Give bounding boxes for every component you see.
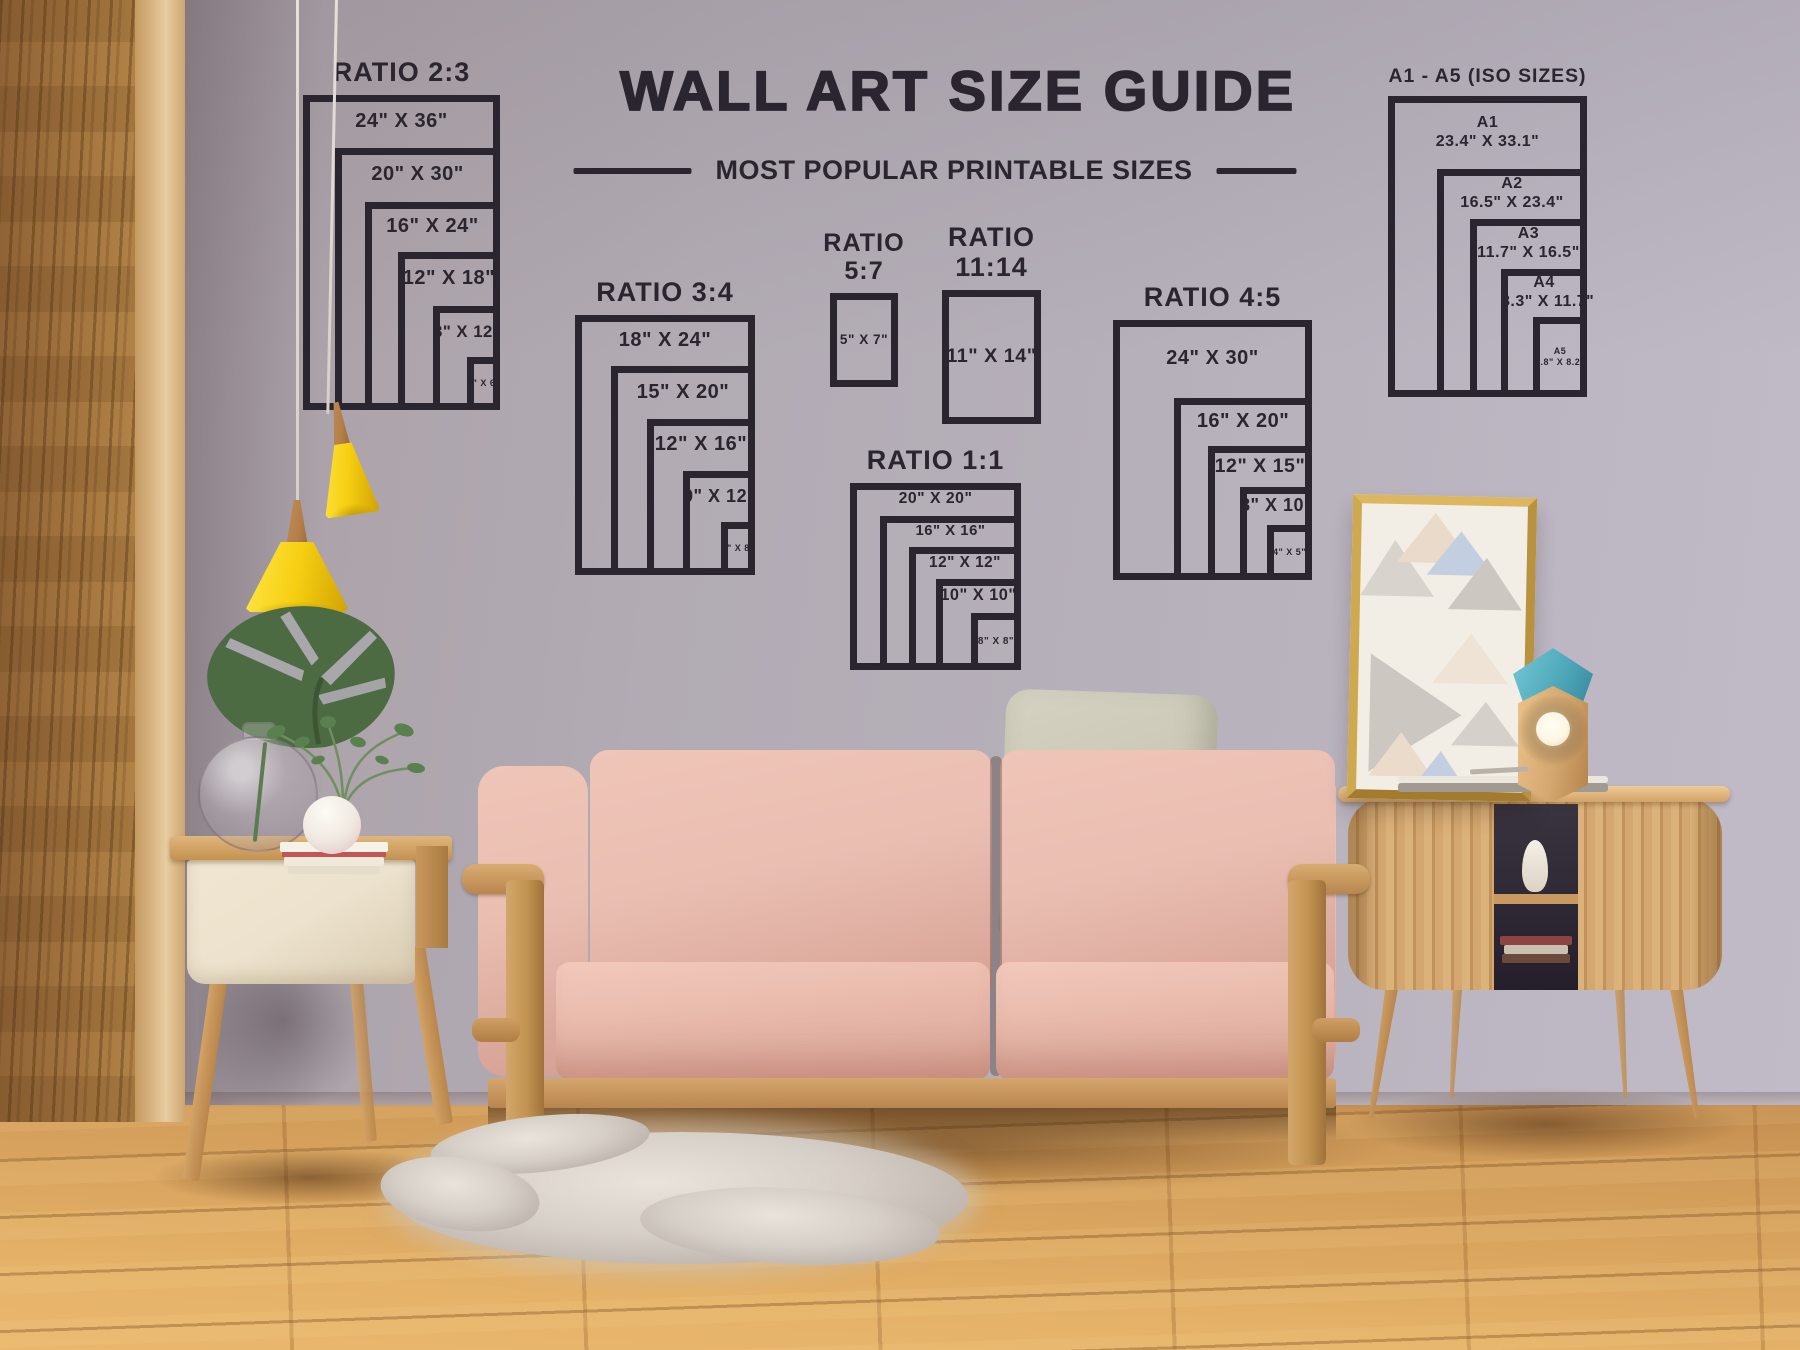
side-table-side-panel bbox=[416, 846, 448, 948]
chart-title-iso-a1-a5: A1 - A5 (ISO SIZES) bbox=[1389, 66, 1587, 88]
lamp-wood-neck bbox=[281, 500, 313, 546]
lamp-yellow-shade bbox=[316, 440, 379, 519]
lamp-cord-left bbox=[296, 0, 299, 512]
size-label: A311.7" X 16.5" bbox=[1470, 225, 1587, 263]
size-label: 8" X 10" bbox=[1240, 495, 1312, 516]
side-table-drawer bbox=[187, 860, 415, 984]
size-label: 4" X 6" bbox=[467, 378, 500, 389]
size-label: 10" X 10" bbox=[936, 586, 1021, 605]
chart-title-ratio-5-7: RATIO5:7 bbox=[823, 229, 904, 285]
chart-title-ratio-2-3: RATIO 2:3 bbox=[333, 57, 471, 87]
size-label: 20" X 30" bbox=[335, 163, 500, 187]
size-label: 8" X 8" bbox=[971, 636, 1021, 648]
size-label: 6" X 8" bbox=[721, 543, 755, 554]
size-label: 12" X 15" bbox=[1208, 455, 1312, 478]
size-chart-iso-a1-a5: A1 - A5 (ISO SIZES)A123.4" X 33.1"A216.5… bbox=[1388, 96, 1587, 397]
lamp-wood-neck bbox=[324, 400, 354, 447]
size-chart-ratio-4-5: RATIO 4:524" X 30"16" X 20"12" X 15"8" X… bbox=[1113, 320, 1312, 580]
size-label: 9" X 12" bbox=[683, 486, 755, 507]
chart-title-ratio-4-5: RATIO 4:5 bbox=[1144, 282, 1282, 312]
size-label: 12" X 16" bbox=[647, 433, 755, 457]
size-chart-ratio-11-14: RATIO11:1411" X 14" bbox=[942, 290, 1041, 424]
size-label: 16" X 16" bbox=[880, 523, 1021, 541]
geometric-triangle-art bbox=[1356, 503, 1528, 792]
book bbox=[284, 857, 384, 866]
size-label: 4" X 5" bbox=[1267, 547, 1312, 558]
book bbox=[1502, 954, 1570, 963]
cabinet-floor-shadow bbox=[1345, 1088, 1745, 1160]
chart-title-ratio-1-1: RATIO 1:1 bbox=[867, 445, 1005, 475]
white-plant-pot bbox=[303, 796, 361, 854]
book bbox=[1500, 936, 1572, 945]
size-label: A48.3" X 11.7" bbox=[1501, 274, 1587, 312]
sofa-seat-cushion-right bbox=[996, 962, 1334, 1080]
sofa-wood-rail bbox=[488, 1078, 1336, 1108]
size-label: 12" X 18" bbox=[398, 267, 500, 291]
size-label: 11" X 14" bbox=[942, 345, 1041, 368]
book bbox=[1504, 945, 1568, 954]
size-label: 18" X 24" bbox=[575, 329, 755, 353]
size-label: 20" X 20" bbox=[850, 490, 1021, 509]
chart-title-ratio-11-14: RATIO11:14 bbox=[948, 222, 1035, 282]
size-label: 16" X 24" bbox=[365, 215, 500, 239]
size-label: A216.5" X 23.4" bbox=[1437, 175, 1587, 213]
chart-title-ratio-3-4: RATIO 3:4 bbox=[596, 277, 734, 307]
gold-poster-frame bbox=[1347, 494, 1537, 802]
size-label: A123.4" X 33.1" bbox=[1388, 114, 1587, 152]
size-label: 15" X 20" bbox=[611, 381, 755, 405]
cabinet-niche-shelf bbox=[1494, 894, 1578, 904]
size-label: 16" X 20" bbox=[1174, 410, 1312, 434]
sofa-crossbar-right bbox=[1312, 1018, 1360, 1042]
size-label: 8" X 12" bbox=[433, 322, 500, 342]
hex-lamp-bulb bbox=[1536, 712, 1570, 746]
wall-art-size-guide-mockup: WALL ART SIZE GUIDE MOST POPULAR PRINTAB… bbox=[0, 0, 1800, 1350]
size-chart-ratio-1-1: RATIO 1:120" X 20"16" X 16"12" X 12"10" … bbox=[850, 483, 1021, 670]
sofa-crossbar-left bbox=[472, 1018, 520, 1042]
size-chart-ratio-3-4: RATIO 3:418" X 24"15" X 20"12" X 16"9" X… bbox=[575, 315, 755, 575]
size-label: A55.8" X 8.2" bbox=[1533, 346, 1587, 367]
sofa-seat-cushion-left bbox=[556, 962, 990, 1080]
potted-plant-sprigs bbox=[258, 712, 432, 810]
size-chart-ratio-5-7: RATIO5:75" X 7" bbox=[830, 293, 898, 387]
size-label: 12" X 12" bbox=[909, 554, 1021, 572]
size-label: 24" X 30" bbox=[1113, 347, 1312, 371]
size-label: 5" X 7" bbox=[830, 332, 898, 348]
niche-books bbox=[1500, 936, 1572, 964]
book bbox=[288, 866, 380, 874]
